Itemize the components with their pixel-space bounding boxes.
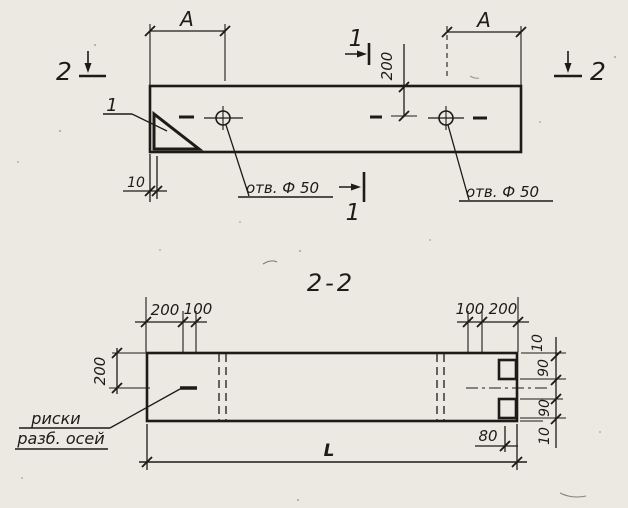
dim-10-label: 10 <box>127 175 145 191</box>
dim-200-plan: 200 <box>378 44 417 121</box>
dim-a-left: А <box>145 7 230 86</box>
drawing-canvas: 1 А А <box>0 0 628 508</box>
section-title: 2-2 <box>307 269 355 297</box>
dim-chain-top-right: 100 200 <box>456 297 529 352</box>
corner-triangle-mark <box>154 114 199 149</box>
dim-label-90: 90 <box>536 359 552 377</box>
dim-a-left-label: А <box>178 7 194 31</box>
end-notch-bottom <box>499 399 516 418</box>
plan-view: 1 А А <box>56 7 606 226</box>
stray-pen-mark <box>560 493 586 497</box>
dim-label-90: 90 <box>537 399 553 417</box>
plan-panel-outline <box>150 86 521 152</box>
stray-pen-mark <box>470 76 479 78</box>
arrow-right-icon <box>351 184 361 191</box>
note-line2: разб. осей <box>16 429 104 448</box>
section-2-left-label: 2 <box>56 57 72 86</box>
section-mark-2-right: 2 <box>554 51 606 86</box>
dim-10-plan: 10 <box>123 154 167 202</box>
section-mark-1-top: 1 <box>345 26 369 65</box>
hole-label-right: отв. Ф 50 <box>448 125 553 201</box>
detail-mark-label: 1 <box>106 95 117 116</box>
dim-length-L: L <box>139 424 527 470</box>
section-1-top-label: 1 <box>349 26 364 52</box>
dim-a-right-label: А <box>475 8 491 32</box>
dim-L-label: L <box>324 441 335 461</box>
dim-label-100: 100 <box>456 300 485 318</box>
dim-label-10: 10 <box>530 334 546 352</box>
dim-a-right: А <box>442 8 526 86</box>
end-notch-top <box>499 360 516 379</box>
dim-200-label: 200 <box>378 52 396 81</box>
section-view: 2-2 200 <box>15 269 566 470</box>
dim-label-200: 200 <box>151 301 180 319</box>
section-1-bottom-label: 1 <box>346 200 361 226</box>
dim-height-200: 200 <box>91 348 150 394</box>
dim-chain-right-end: 10 90 90 10 <box>520 334 566 448</box>
section-panel-outline <box>147 353 517 421</box>
dim-label-100: 100 <box>184 300 213 318</box>
stray-pen-mark <box>263 261 277 264</box>
arrow-down-icon <box>565 63 572 73</box>
dim-chain-top-left: 200 100 <box>135 297 212 352</box>
section-mark-2-left: 2 <box>56 51 106 86</box>
axis-marks-note: риски разб. осей <box>15 389 180 449</box>
arrow-down-icon <box>85 63 92 73</box>
drawing-sheet: 1 А А <box>0 0 628 508</box>
hole-right-label: отв. Ф 50 <box>466 183 539 201</box>
note-line1: риски <box>30 409 80 428</box>
section-mark-1-bottom: 1 <box>339 172 364 226</box>
dim-label-10: 10 <box>537 427 553 445</box>
dim-80: 80 <box>475 426 518 452</box>
section-2-right-label: 2 <box>590 57 606 86</box>
dim-80-label: 80 <box>478 427 497 445</box>
hole-label-left: отв. Ф 50 <box>226 125 333 197</box>
hole-left-label: отв. Ф 50 <box>246 179 319 197</box>
dim-height-label: 200 <box>91 357 109 386</box>
dim-label-200: 200 <box>489 300 518 318</box>
